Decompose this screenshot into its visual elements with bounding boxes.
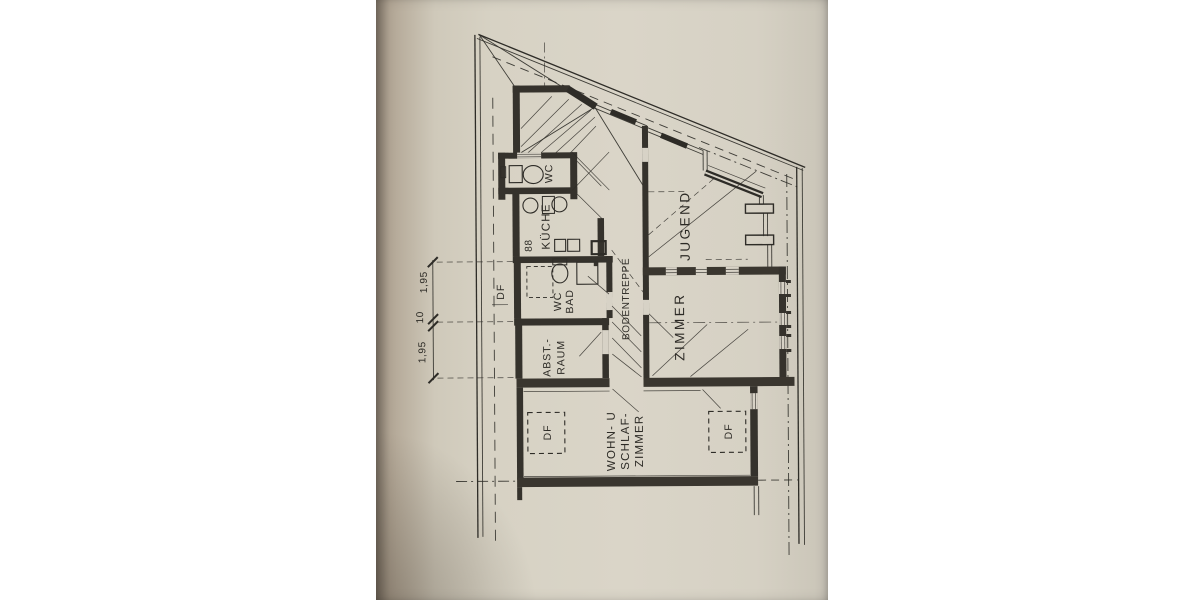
- door-swing: [613, 389, 639, 412]
- room-wohn-schlafzimmer: DF DF WOHN- U SCHLAF- ZIMMER: [516, 377, 758, 516]
- dormer-step: [746, 235, 774, 245]
- door-swing: [579, 332, 601, 356]
- dim-label-195-upper: 1,95: [419, 271, 430, 293]
- dimension-chain: 1,95 10 1,95: [415, 257, 515, 384]
- room-label-jugend: JUGEND: [677, 190, 692, 261]
- toilet-bowl-icon: [552, 264, 568, 283]
- room-label-raum: RAUM: [555, 340, 567, 375]
- room-label-zimmer: ZIMMER: [672, 292, 687, 360]
- door-swing: [577, 194, 602, 219]
- stove-icon: 88: [524, 239, 535, 251]
- screenshot-root: WC 88 KÜCHE: [0, 0, 1200, 600]
- corridor-bodentreppe: BODENTREPPE: [572, 104, 649, 377]
- room-kueche: 88 KÜCHE: [512, 193, 612, 263]
- room-label-abst: ABST.-: [541, 338, 553, 377]
- room-label-kueche: KÜCHE: [540, 203, 552, 249]
- df-marker-label: DF: [723, 423, 735, 439]
- door-swing: [703, 389, 721, 408]
- roof-window-band: [661, 135, 687, 146]
- room-label-wohn: WOHN- U: [606, 411, 618, 471]
- dormer-step: [745, 204, 773, 213]
- door-swing: [649, 314, 673, 338]
- floor-plan-drawing: WC 88 KÜCHE: [0, 0, 1200, 600]
- room-abstellraum: ABST.- RAUM: [514, 318, 609, 379]
- room-label-wc: WC: [543, 164, 555, 184]
- toilet-bowl-icon: [523, 165, 543, 183]
- room-wc-bad: WC BAD: [514, 256, 613, 319]
- label-bodentreppe: BODENTREPPE: [621, 258, 633, 340]
- room-label-zimmer2: ZIMMER: [634, 415, 646, 468]
- dim-label-10: 10: [415, 311, 426, 323]
- df-marker-label: DF: [495, 284, 507, 300]
- stairwell: [513, 85, 596, 154]
- df-marker-label: DF: [542, 424, 554, 440]
- room-jugendzimmer: JUGEND ZIMMER: [642, 125, 795, 387]
- dim-label-195-lower: 1,95: [417, 341, 428, 363]
- door-swing: [577, 161, 601, 186]
- room-label-schlaf: SCHLAF-: [620, 412, 632, 470]
- room-label-wc2: WC: [552, 292, 564, 312]
- sink-bowl-icon: [523, 198, 538, 213]
- appliance-icon: [568, 239, 580, 251]
- stair-hatch-icon: [521, 96, 596, 153]
- appliance-icon: [555, 239, 566, 251]
- bathtub-icon: [527, 266, 553, 297]
- toilet-cistern-icon: [509, 166, 522, 183]
- room-label-bad: BAD: [564, 289, 576, 314]
